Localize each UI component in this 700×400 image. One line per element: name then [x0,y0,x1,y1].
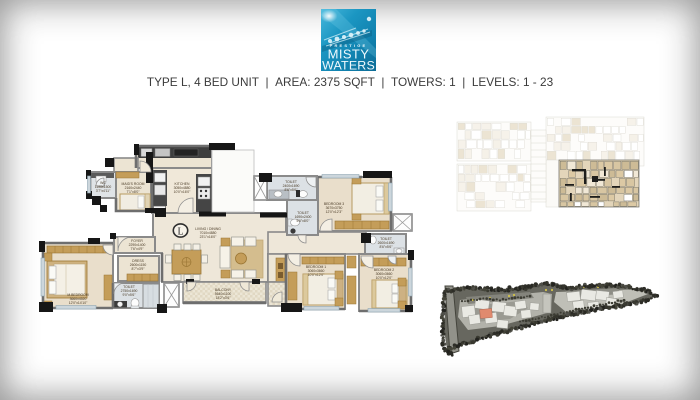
svg-text:8'7"x3'9": 8'7"x3'9" [132,267,146,271]
svg-text:10'0"x12'0": 10'0"x12'0" [308,273,326,277]
svg-text:8'6"x5'6": 8'6"x5'6" [285,188,299,192]
svg-text:12'0"x14'10": 12'0"x14'10" [69,301,88,305]
svg-text:L: L [177,227,183,238]
svg-text:8'6"x5'6": 8'6"x5'6" [380,245,394,249]
svg-text:10'0"x16'0": 10'0"x16'0" [174,190,192,194]
svg-text:3'7"x4'11": 3'7"x4'11" [96,189,111,193]
svg-text:9'0"x5'6": 9'0"x5'6" [123,293,137,297]
svg-text:5'6"x8'0": 5'6"x8'0" [297,219,311,223]
svg-text:WATERS: WATERS [322,59,375,73]
svg-text:7'6"x4'9": 7'6"x4'9" [131,247,145,251]
svg-text:7'1"x8'0": 7'1"x8'0" [127,190,141,194]
svg-text:10'0"x12'0": 10'0"x12'0" [376,276,394,280]
svg-text:18'2"x3'6": 18'2"x3'6" [216,296,232,300]
svg-text:12'0"x12'3": 12'0"x12'3" [326,210,344,214]
svg-text:23'1"x16'0": 23'1"x16'0" [200,235,218,239]
